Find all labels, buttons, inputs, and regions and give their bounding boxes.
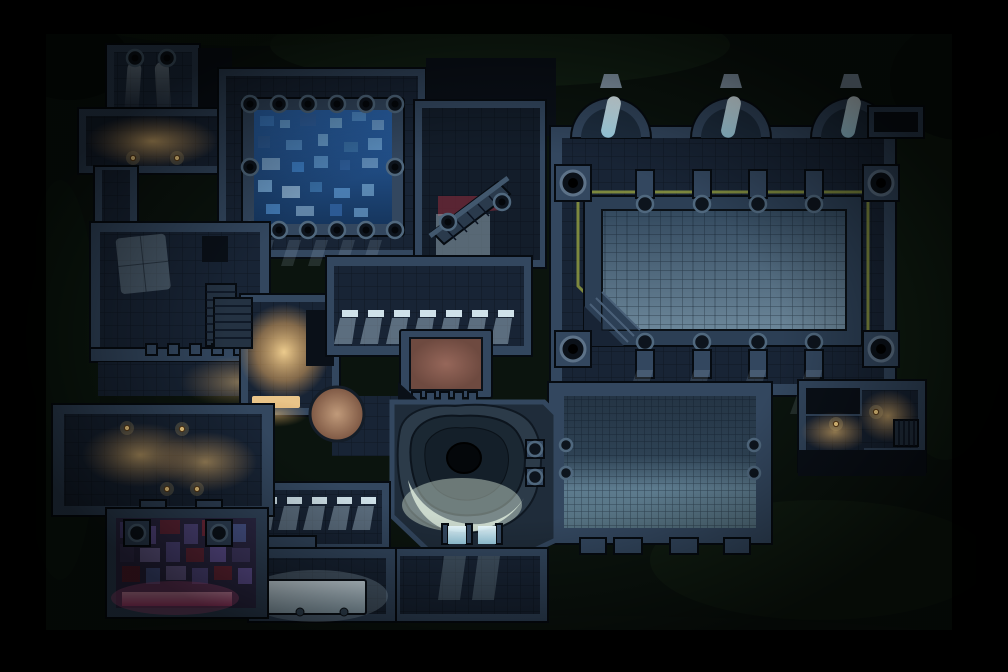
dungeon-map-canvas	[0, 0, 1008, 672]
vignette	[0, 0, 1008, 672]
battle-map-screenshot	[0, 0, 1008, 672]
